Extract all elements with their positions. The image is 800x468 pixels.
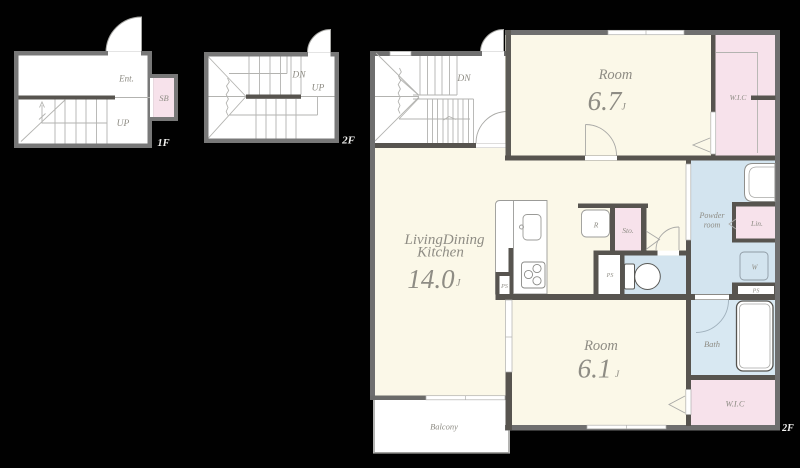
svg-text:PS: PS [500, 284, 508, 290]
svg-text:W.I.C: W.I.C [725, 399, 744, 409]
svg-text:R: R [593, 221, 599, 230]
svg-text:Balcony: Balcony [430, 422, 458, 432]
svg-text:UP: UP [117, 119, 130, 129]
svg-text:6.7: 6.7 [588, 86, 623, 116]
svg-text:Ent.: Ent. [118, 74, 134, 84]
svg-text:2F: 2F [341, 135, 356, 147]
svg-text:Room: Room [583, 338, 618, 354]
svg-text:SB: SB [159, 93, 168, 103]
svg-text:DN: DN [456, 74, 471, 84]
svg-text:Bath: Bath [704, 339, 720, 349]
svg-text:1F: 1F [157, 138, 169, 149]
svg-text:Room: Room [598, 67, 633, 83]
svg-text:PS: PS [752, 289, 760, 295]
svg-text:6.1: 6.1 [578, 354, 612, 384]
svg-text:UP: UP [312, 84, 325, 94]
svg-text:Powder: Powder [699, 211, 726, 220]
svg-text:room: room [704, 221, 721, 230]
svg-text:W.I.C: W.I.C [730, 93, 748, 102]
svg-text:2F: 2F [781, 423, 794, 434]
svg-text:Kitchen: Kitchen [416, 245, 464, 261]
svg-text:Sto.: Sto. [622, 226, 634, 235]
svg-text:PS: PS [606, 273, 614, 279]
svg-text:J: J [456, 278, 461, 289]
svg-text:DN: DN [291, 71, 306, 81]
svg-text:Lin.: Lin. [750, 219, 763, 228]
svg-text:14.0: 14.0 [407, 264, 455, 294]
